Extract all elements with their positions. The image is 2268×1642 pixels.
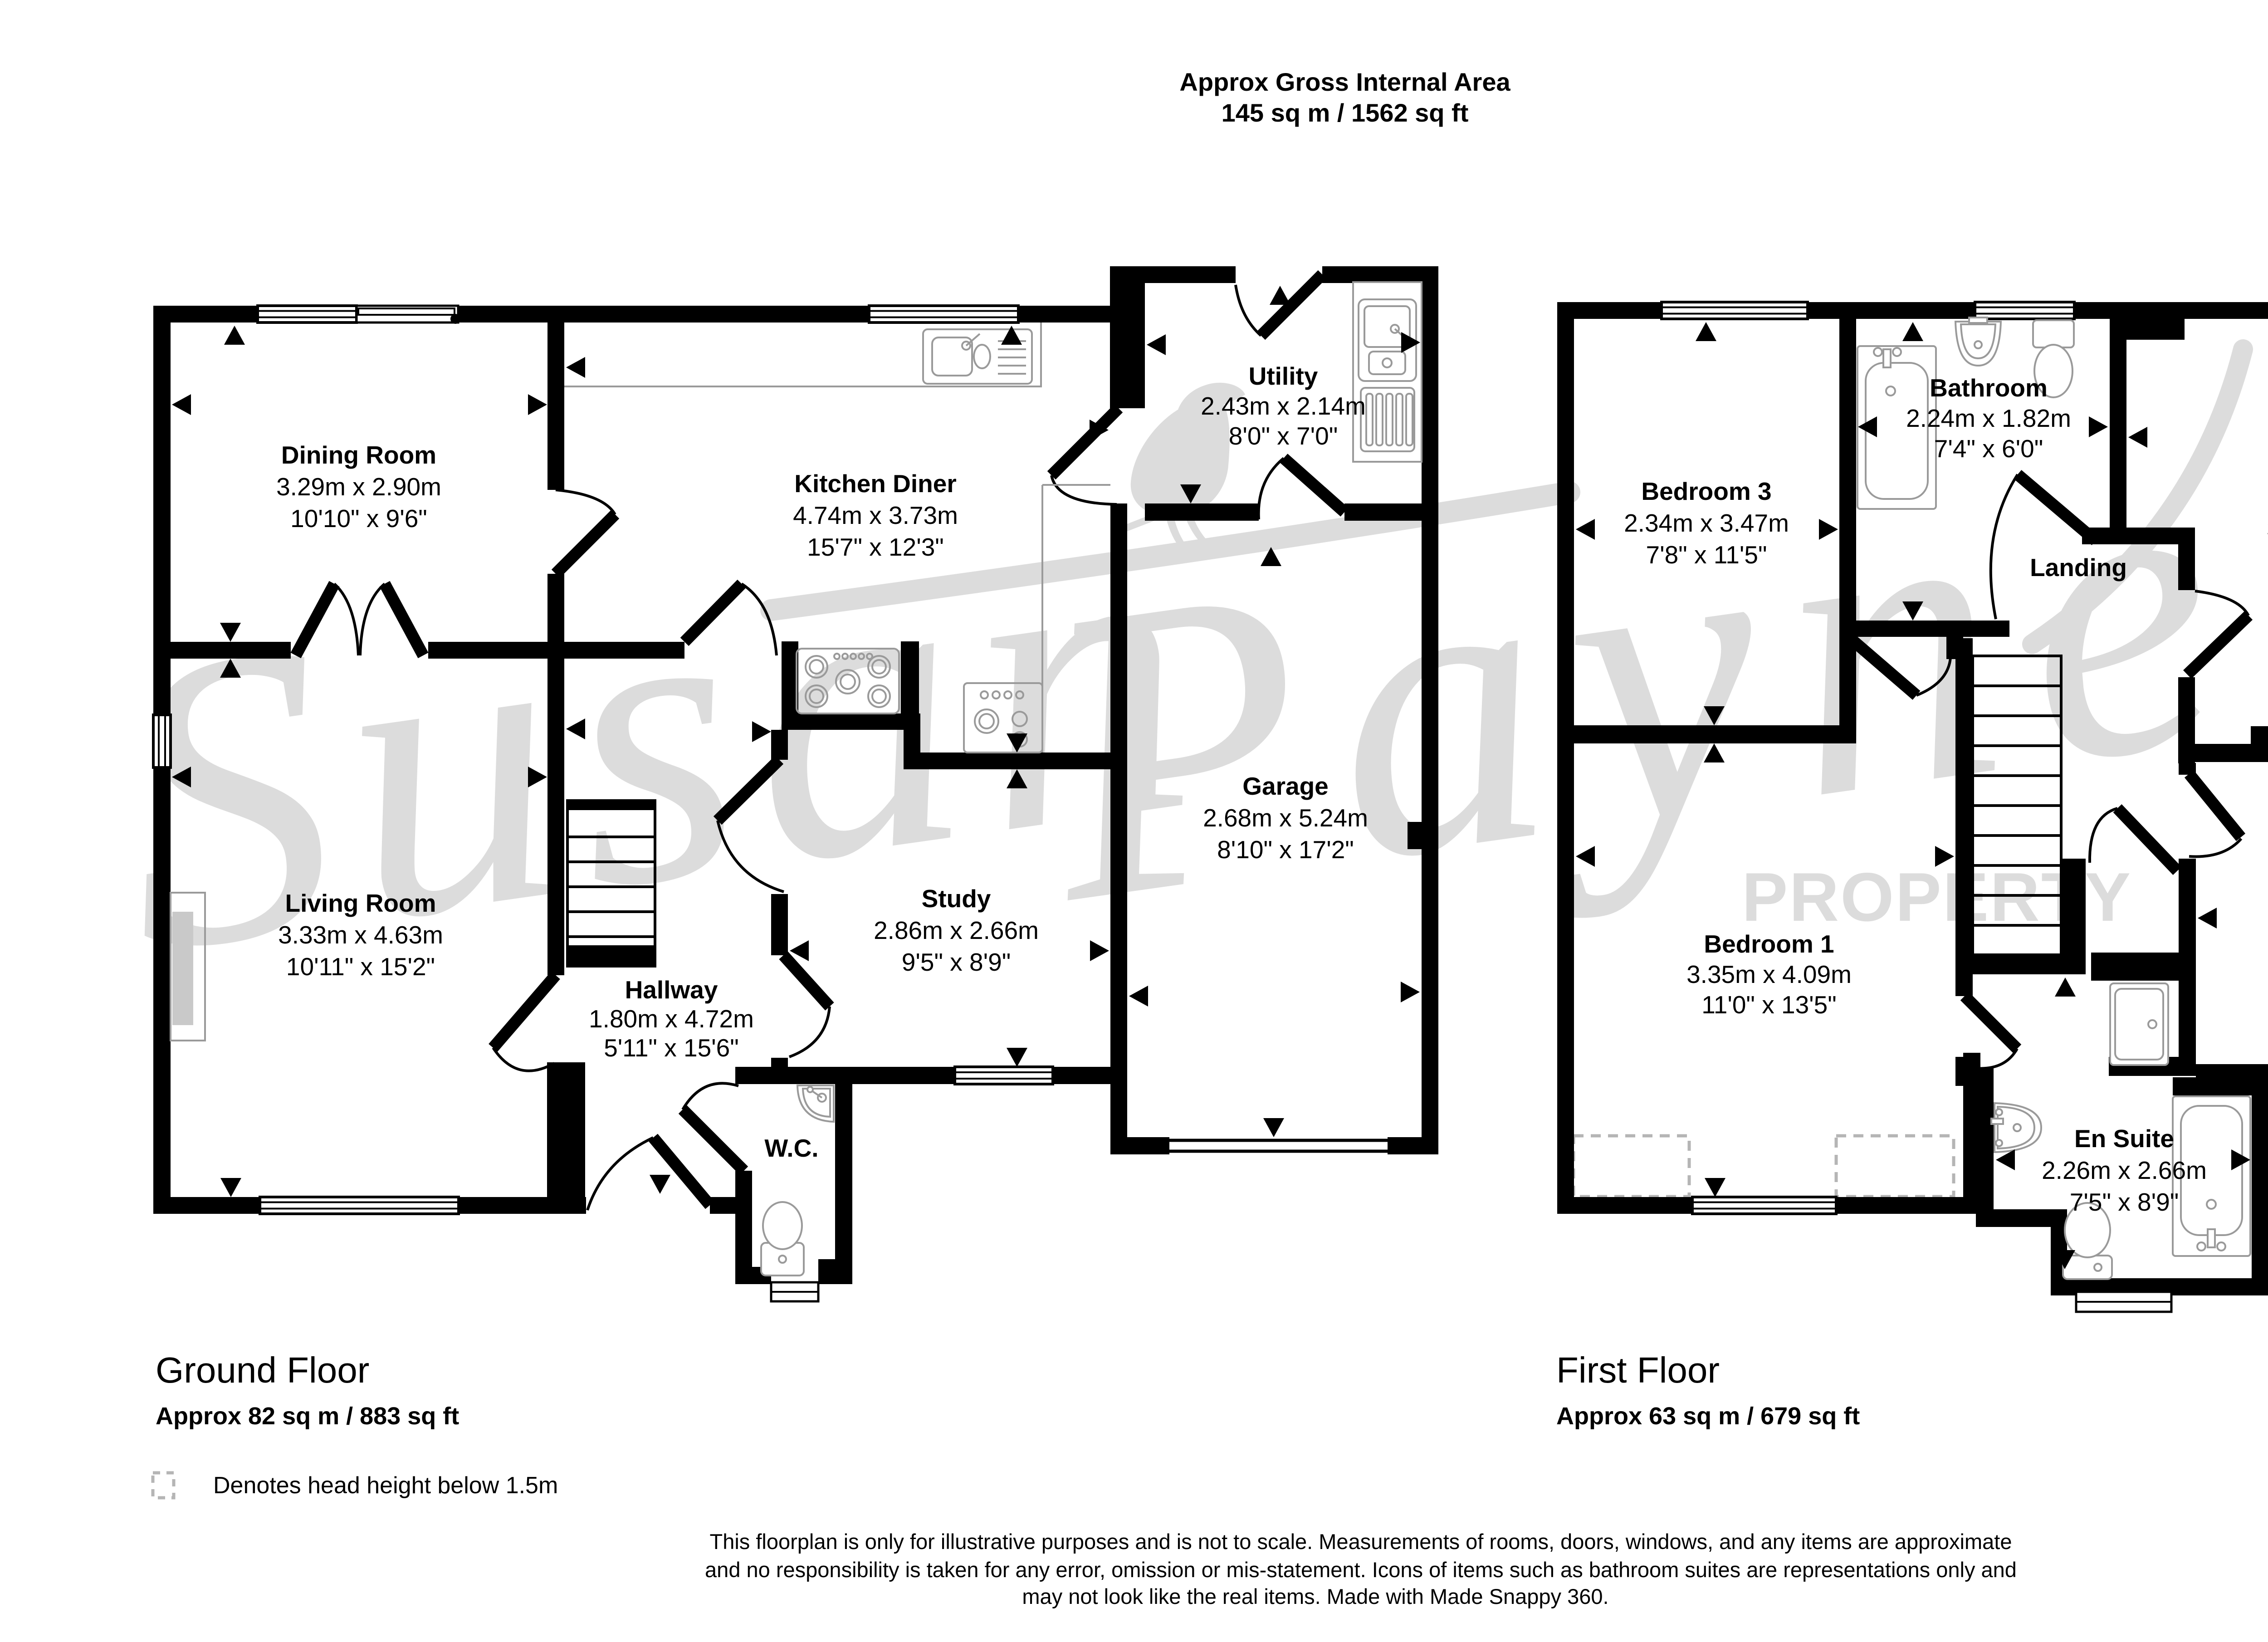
- svg-text:Approx 63 sq m / 679 sq ft: Approx 63 sq m / 679 sq ft: [1556, 1403, 1860, 1430]
- svg-text:This floorplan is only for ill: This floorplan is only for illustrative …: [710, 1530, 2012, 1554]
- svg-text:8'10" x 17'2": 8'10" x 17'2": [1217, 836, 1354, 864]
- svg-text:W.C.: W.C.: [764, 1134, 818, 1162]
- svg-text:1.80m x 4.72m: 1.80m x 4.72m: [589, 1005, 754, 1033]
- svg-text:7'4" x 6'0": 7'4" x 6'0": [1934, 435, 2043, 463]
- svg-text:Bathroom: Bathroom: [1930, 374, 2048, 402]
- svg-text:Study: Study: [922, 885, 991, 913]
- svg-text:Dining Room: Dining Room: [281, 441, 436, 469]
- svg-text:2.34m x 3.47m: 2.34m x 3.47m: [1624, 509, 1789, 537]
- svg-text:3.29m x 2.90m: 3.29m x 2.90m: [276, 473, 441, 501]
- svg-text:15'7" x 12'3": 15'7" x 12'3": [807, 533, 944, 561]
- svg-text:3.35m x 4.09m: 3.35m x 4.09m: [1686, 960, 1852, 988]
- svg-text:5'11" x 15'6": 5'11" x 15'6": [604, 1034, 739, 1062]
- svg-text:Kitchen Diner: Kitchen Diner: [794, 469, 957, 498]
- svg-text:2.26m x 2.66m: 2.26m x 2.66m: [2042, 1156, 2207, 1184]
- svg-text:7'8" x 11'5": 7'8" x 11'5": [1646, 541, 1767, 569]
- svg-text:Landing: Landing: [2030, 553, 2127, 582]
- svg-text:2.68m x 5.24m: 2.68m x 5.24m: [1203, 804, 1368, 832]
- svg-text:Hallway: Hallway: [625, 976, 718, 1004]
- svg-text:10'10" x 9'6": 10'10" x 9'6": [290, 504, 427, 533]
- svg-text:may not look like the real ite: may not look like the real items. Made w…: [1022, 1584, 1608, 1608]
- svg-text:First Floor: First Floor: [1556, 1350, 1720, 1390]
- svg-text:Denotes head height below 1.5m: Denotes head height below 1.5m: [213, 1472, 558, 1499]
- svg-text:9'5" x 8'9": 9'5" x 8'9": [902, 948, 1011, 976]
- svg-text:145 sq m / 1562 sq ft: 145 sq m / 1562 sq ft: [1222, 98, 1469, 127]
- svg-text:Living Room: Living Room: [285, 889, 436, 917]
- svg-text:Bedroom 3: Bedroom 3: [1641, 477, 1771, 505]
- svg-text:Approx Gross Internal Area: Approx Gross Internal Area: [1179, 68, 1510, 96]
- svg-text:2.86m x 2.66m: 2.86m x 2.66m: [874, 916, 1039, 944]
- svg-text:and no responsibility is taken: and no responsibility is taken for any e…: [705, 1558, 2017, 1582]
- svg-text:3.33m x 4.63m: 3.33m x 4.63m: [278, 921, 443, 949]
- svg-text:11'0" x 13'5": 11'0" x 13'5": [1701, 991, 1837, 1019]
- svg-text:Utility: Utility: [1249, 362, 1318, 390]
- svg-text:En Suite: En Suite: [2074, 1124, 2174, 1153]
- svg-text:Bedroom 1: Bedroom 1: [1704, 930, 1834, 958]
- svg-text:4.74m x 3.73m: 4.74m x 3.73m: [793, 501, 958, 529]
- svg-text:2.24m x 1.82m: 2.24m x 1.82m: [1906, 404, 2071, 432]
- svg-text:Garage: Garage: [1242, 772, 1329, 800]
- svg-text:2.43m x 2.14m: 2.43m x 2.14m: [1201, 392, 1366, 420]
- svg-text:10'11" x 15'2": 10'11" x 15'2": [286, 953, 435, 981]
- svg-text:Ground Floor: Ground Floor: [156, 1350, 369, 1390]
- svg-text:Approx 82 sq m / 883 sq ft: Approx 82 sq m / 883 sq ft: [156, 1403, 459, 1430]
- svg-text:7'5" x 8'9": 7'5" x 8'9": [2070, 1188, 2179, 1216]
- svg-text:8'0" x 7'0": 8'0" x 7'0": [1229, 422, 1338, 450]
